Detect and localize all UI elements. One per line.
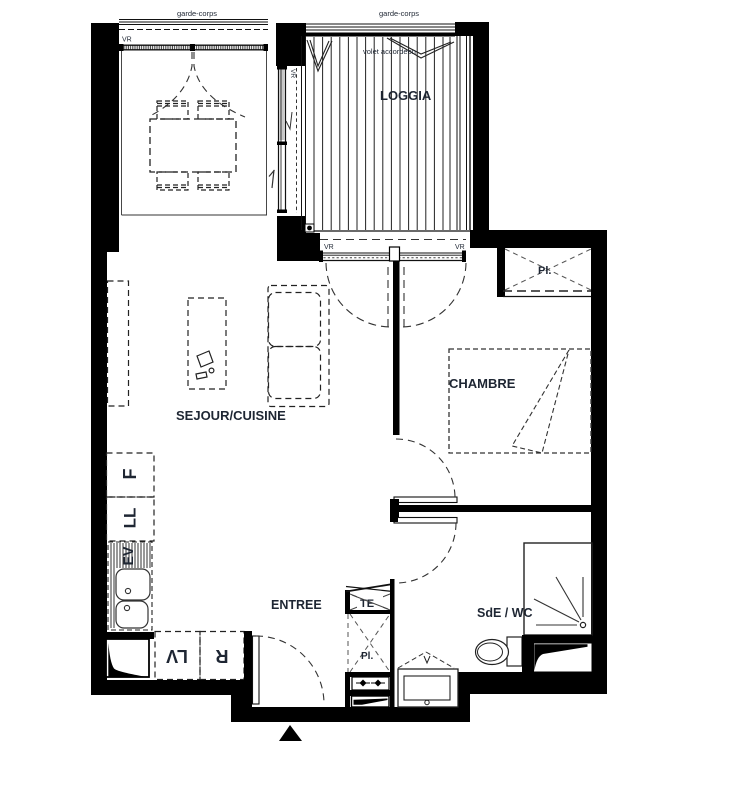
svg-text:LOGGIA: LOGGIA [380, 88, 432, 103]
svg-text:VR: VR [455, 244, 465, 251]
svg-text:CHAMBRE: CHAMBRE [449, 376, 516, 391]
svg-text:Pl.: Pl. [538, 265, 551, 277]
svg-text:R: R [216, 646, 229, 666]
svg-text:garde-corps: garde-corps [177, 9, 217, 18]
svg-text:VR: VR [324, 244, 334, 251]
svg-text:volet accordeon: volet accordeon [363, 47, 416, 56]
svg-text:LV: LV [166, 646, 188, 666]
svg-text:Pl.: Pl. [361, 651, 373, 662]
svg-text:garde-corps: garde-corps [379, 9, 419, 18]
svg-text:F: F [120, 469, 140, 480]
svg-text:LL: LL [121, 508, 140, 529]
svg-text:VR: VR [289, 69, 296, 78]
svg-text:VR: VR [122, 37, 132, 44]
svg-text:TE: TE [360, 598, 374, 610]
svg-text:EV: EV [120, 546, 136, 565]
svg-text:SEJOUR/CUISINE: SEJOUR/CUISINE [176, 408, 286, 423]
svg-text:ENTREE: ENTREE [271, 598, 322, 612]
